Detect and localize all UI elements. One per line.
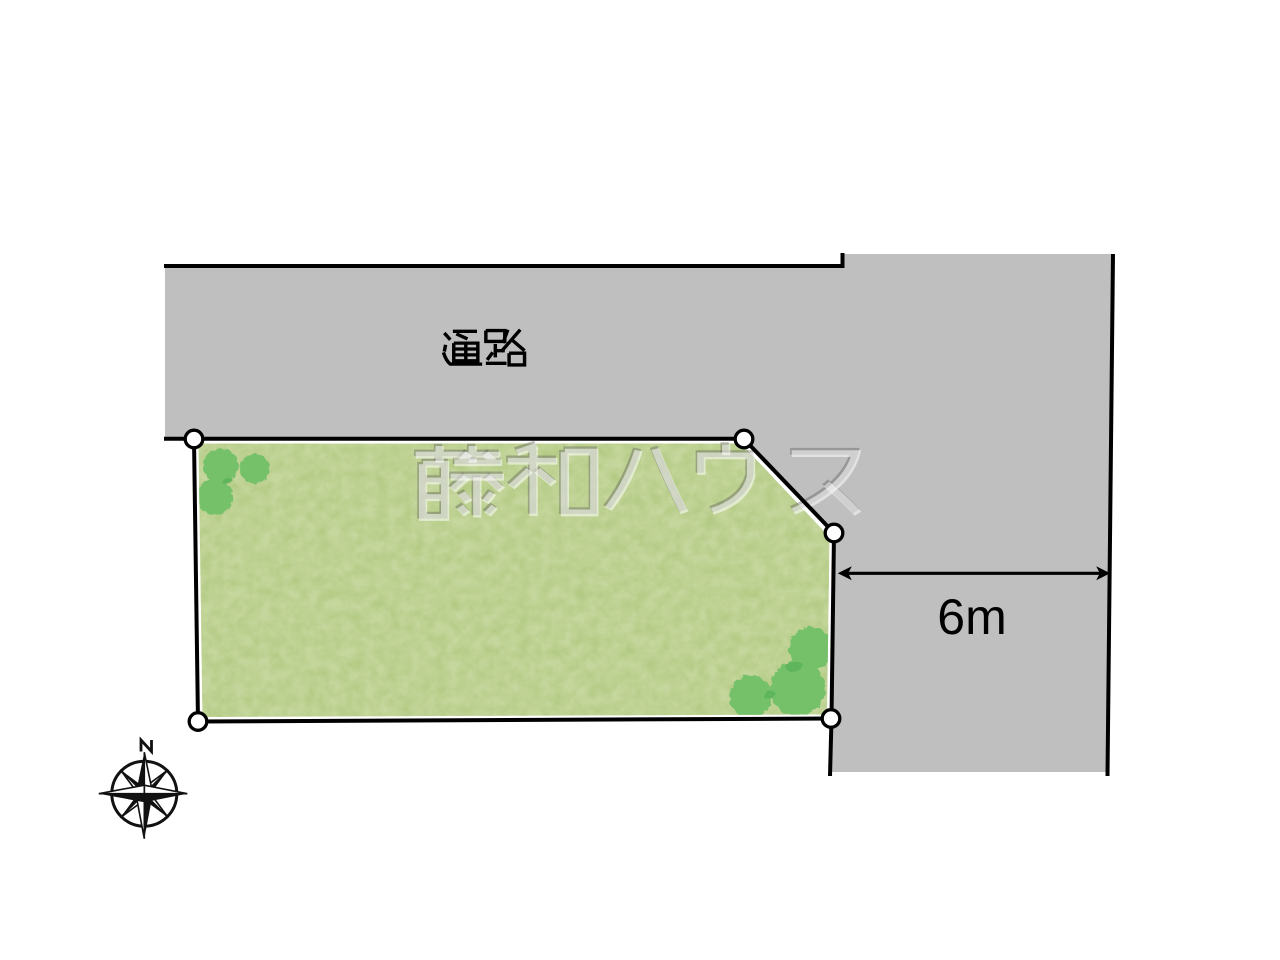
- svg-text:6m: 6m: [937, 589, 1006, 645]
